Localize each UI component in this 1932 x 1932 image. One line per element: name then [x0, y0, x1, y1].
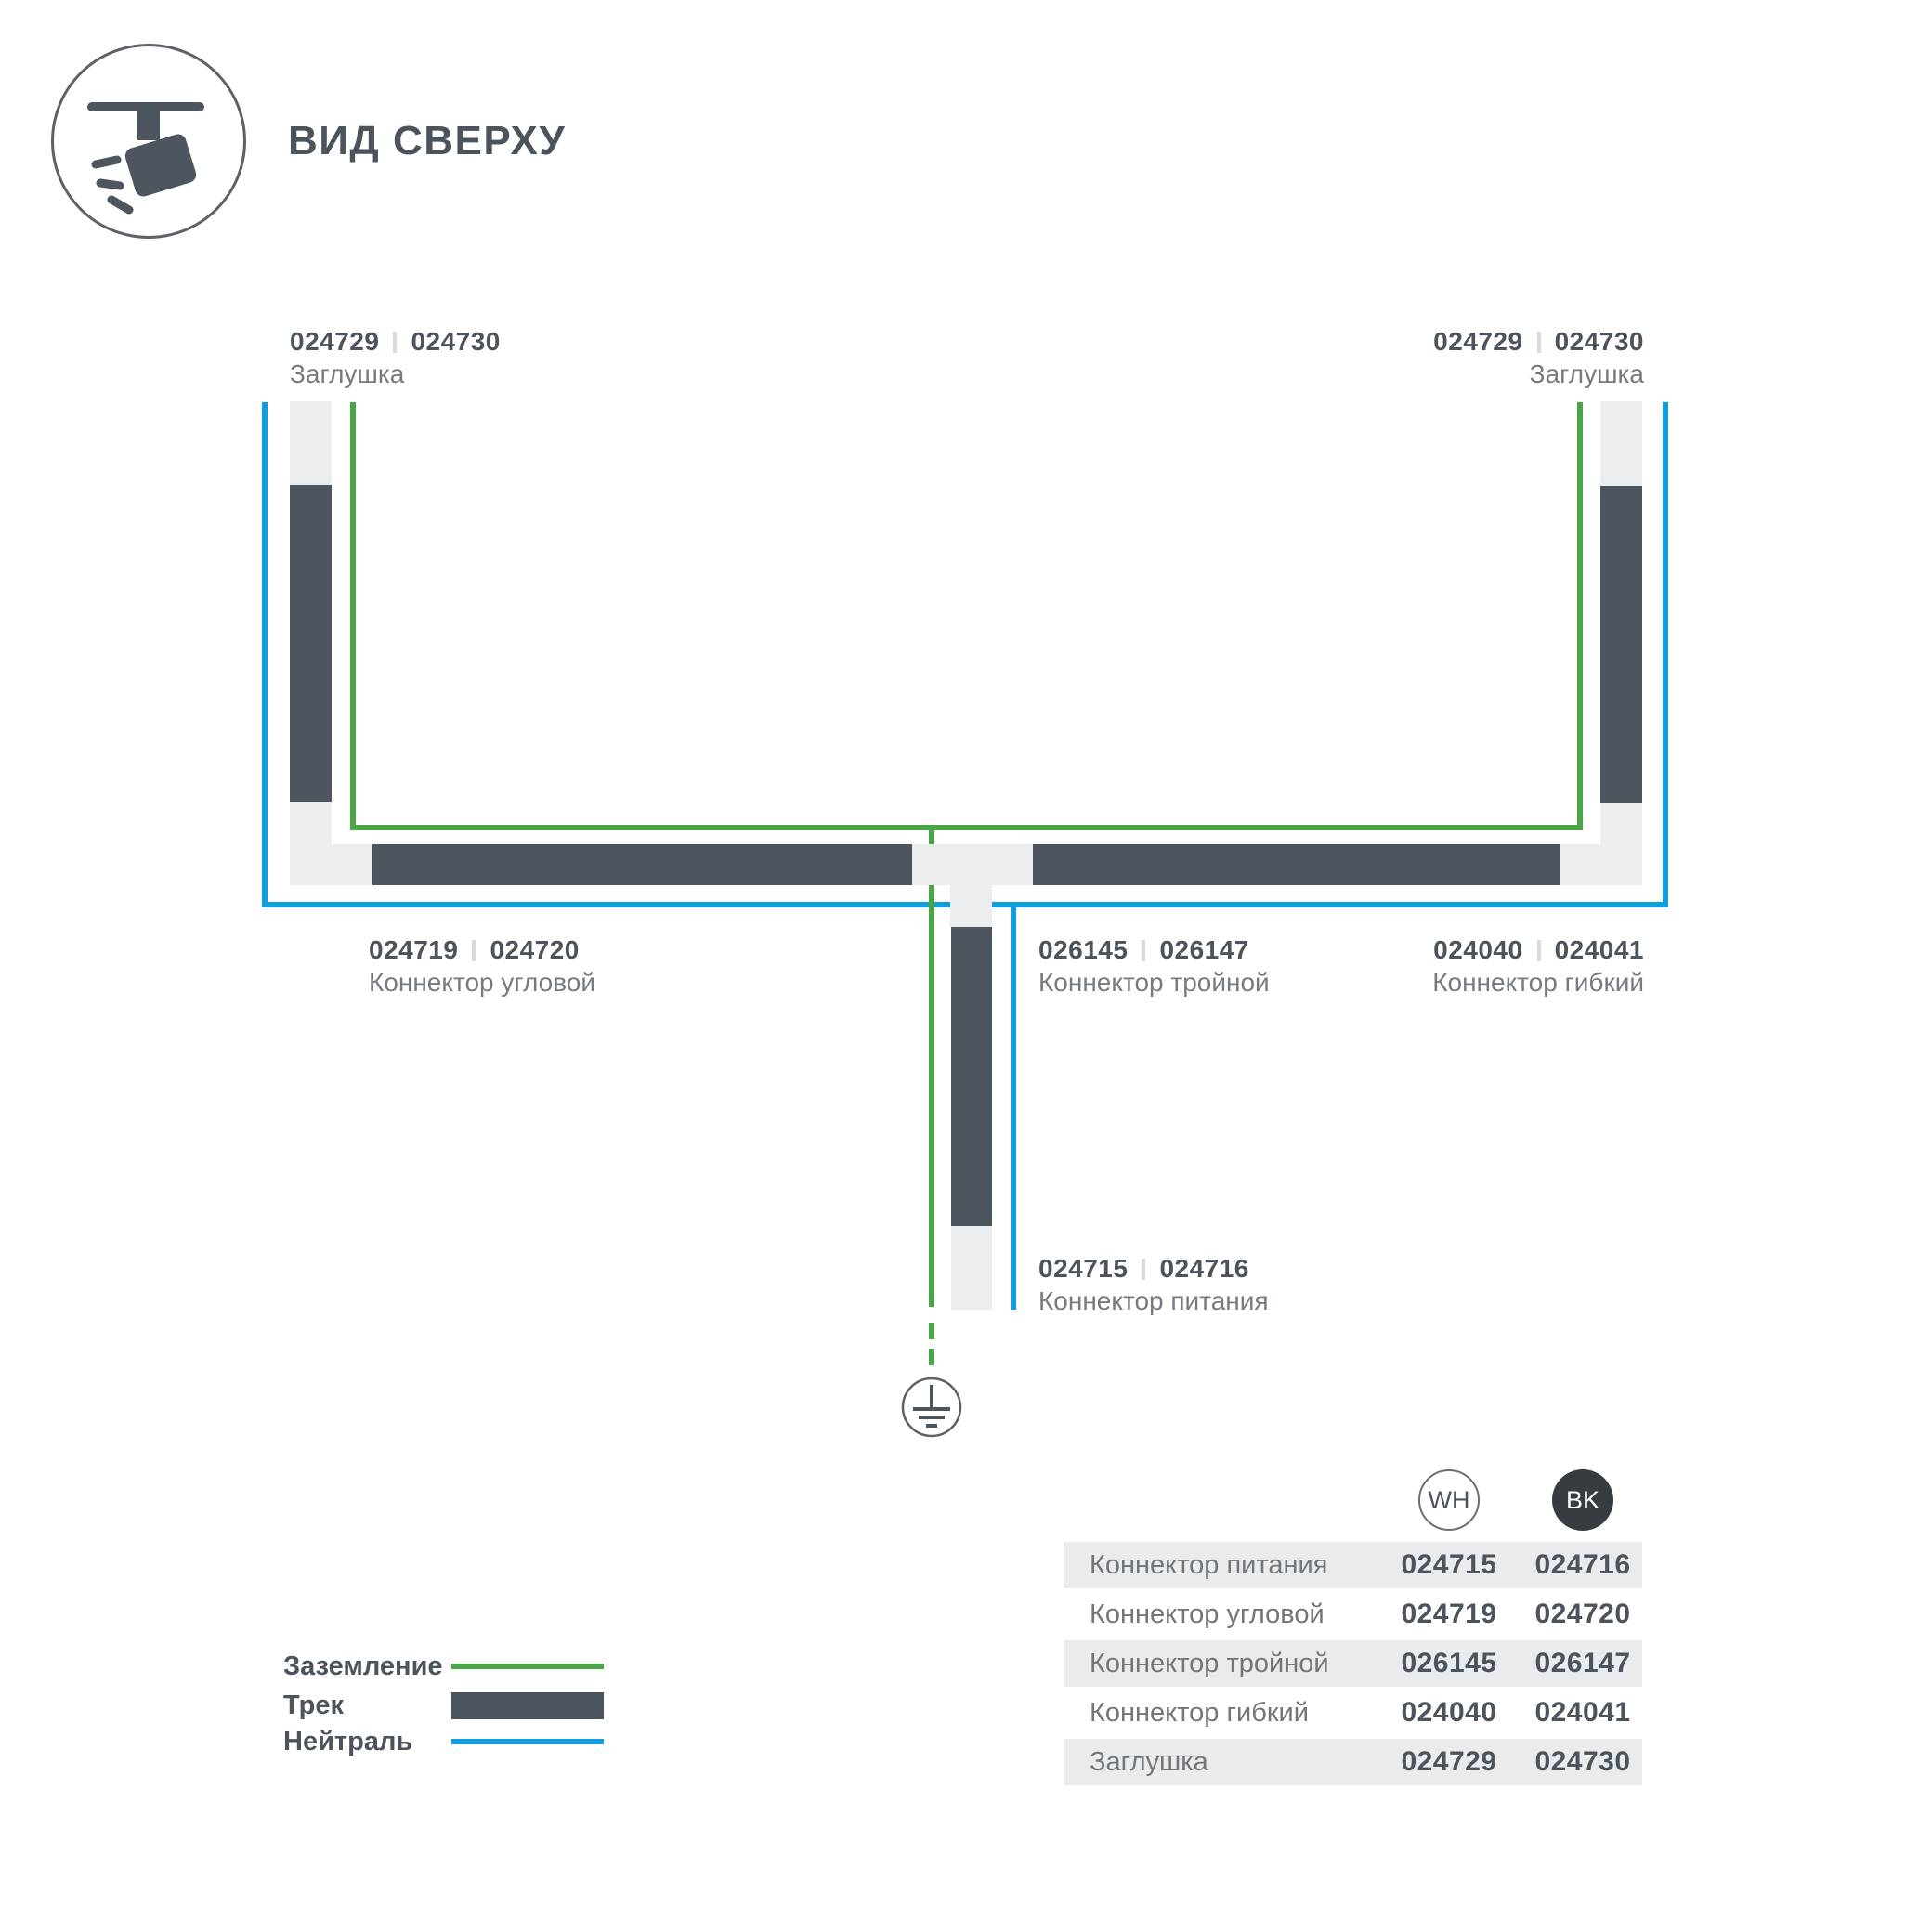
label-endcap-right: 024729024730 Заглушка — [1433, 325, 1644, 390]
part-name: Коннектор гибкий — [1432, 966, 1644, 999]
part-number-wh: 024715 — [1038, 1254, 1128, 1283]
track-bottom-left — [372, 844, 912, 885]
part-name: Коннектор угловой — [369, 966, 595, 999]
part-number-wh: 024719 — [369, 935, 458, 964]
endcap-right — [1600, 401, 1642, 486]
row-bk-number: 024730 — [1523, 1746, 1642, 1778]
triple-connector-bar — [912, 844, 1033, 885]
track-feed — [951, 927, 992, 1226]
part-name: Заглушка — [290, 358, 501, 390]
earth-wire-left — [350, 402, 356, 830]
neutral-wire-right — [1663, 402, 1668, 907]
flex-connector-vertical — [1600, 803, 1642, 885]
row-wh-number: 026145 — [1375, 1648, 1523, 1679]
row-bk-number: 024716 — [1523, 1549, 1642, 1581]
neutral-wire-feed — [1011, 907, 1016, 1310]
row-name: Заглушка — [1064, 1747, 1375, 1778]
number-divider — [472, 940, 476, 961]
ground-symbol — [899, 1375, 964, 1440]
part-name: Коннектор тройной — [1038, 966, 1270, 999]
earth-wire-right — [1577, 402, 1583, 830]
neutral-wire-left — [262, 402, 268, 907]
neutral-line-swatch — [451, 1739, 604, 1744]
track-right — [1600, 486, 1642, 803]
legend-label: Трек — [283, 1690, 344, 1721]
number-divider — [1537, 332, 1541, 353]
row-bk-number: 024720 — [1523, 1599, 1642, 1630]
earth-line-swatch — [451, 1664, 604, 1669]
column-header-wh: WH — [1418, 1469, 1480, 1531]
part-number-bk: 026147 — [1159, 935, 1248, 964]
part-number-wh: 024040 — [1433, 935, 1522, 964]
row-name: Коннектор питания — [1064, 1550, 1375, 1581]
earth-wire-dash-2 — [929, 1349, 934, 1365]
page-title: ВИД СВЕРХУ — [288, 118, 566, 164]
legend-item-earth: Заземление — [283, 1651, 604, 1681]
table-row: Коннектор гибкий 024040 024041 — [1064, 1690, 1642, 1736]
column-header-wh-label: WH — [1429, 1486, 1470, 1515]
earth-wire-dash-1 — [929, 1323, 934, 1339]
table-row: Коннектор питания 024715 024716 — [1064, 1542, 1642, 1588]
label-corner-connector: 024719024720 Коннектор угловой — [369, 933, 595, 999]
power-connector — [951, 1226, 992, 1310]
number-divider — [1537, 940, 1541, 961]
part-number-bk: 024041 — [1555, 935, 1644, 964]
endcap-left — [290, 401, 332, 485]
column-header-bk: BK — [1552, 1469, 1613, 1531]
table-row: Коннектор угловой 024719 024720 — [1064, 1591, 1642, 1638]
part-number-wh: 024729 — [290, 327, 379, 356]
part-number-wh: 024729 — [1433, 327, 1522, 356]
track-left — [290, 485, 332, 802]
number-divider — [1142, 1259, 1145, 1280]
legend-item-neutral: Нейтраль — [283, 1727, 604, 1756]
table-row: Заглушка 024729 024730 — [1064, 1739, 1642, 1785]
table-row: Коннектор тройной 026145 026147 — [1064, 1640, 1642, 1687]
label-flex-connector: 024040024041 Коннектор гибкий — [1432, 933, 1644, 999]
corner-connector-horizontal — [290, 844, 372, 885]
triple-connector-leg — [950, 885, 992, 927]
number-divider — [393, 332, 397, 353]
row-wh-number: 024040 — [1375, 1697, 1523, 1729]
part-number-bk: 024720 — [490, 935, 579, 964]
legend-label: Заземление — [283, 1651, 443, 1682]
label-power-connector: 024715024716 Коннектор питания — [1038, 1252, 1269, 1317]
track-bottom-right — [1033, 844, 1560, 885]
track-bar-swatch — [451, 1692, 604, 1719]
row-wh-number: 024715 — [1375, 1549, 1523, 1581]
track-spotlight-icon — [51, 44, 246, 239]
row-wh-number: 024729 — [1375, 1746, 1523, 1778]
legend-item-track: Трек — [283, 1690, 604, 1720]
row-name: Коннектор гибкий — [1064, 1698, 1375, 1729]
row-name: Коннектор угловой — [1064, 1599, 1375, 1630]
label-endcap-left: 024729024730 Заглушка — [290, 325, 501, 390]
row-wh-number: 024719 — [1375, 1599, 1523, 1630]
part-number-bk: 024730 — [411, 327, 500, 356]
legend-label: Нейтраль — [283, 1727, 412, 1757]
part-number-bk: 024730 — [1555, 327, 1644, 356]
earth-wire-feed — [929, 825, 934, 1307]
track-spotlight-glyph — [54, 46, 243, 236]
part-name: Заглушка — [1433, 358, 1644, 390]
part-number-bk: 024716 — [1159, 1254, 1248, 1283]
part-name: Коннектор питания — [1038, 1285, 1269, 1317]
part-number-wh: 026145 — [1038, 935, 1128, 964]
number-divider — [1142, 940, 1145, 961]
label-triple-connector: 026145026147 Коннектор тройной — [1038, 933, 1270, 999]
row-bk-number: 026147 — [1523, 1648, 1642, 1679]
column-header-bk-label: BK — [1566, 1486, 1599, 1515]
top-view-diagram-page: ВИД СВЕРХУ 024729024730 Заглушка — [0, 0, 1932, 1932]
row-bk-number: 024041 — [1523, 1697, 1642, 1729]
row-name: Коннектор тройной — [1064, 1649, 1375, 1679]
earth-wire-bottom — [350, 825, 1583, 830]
